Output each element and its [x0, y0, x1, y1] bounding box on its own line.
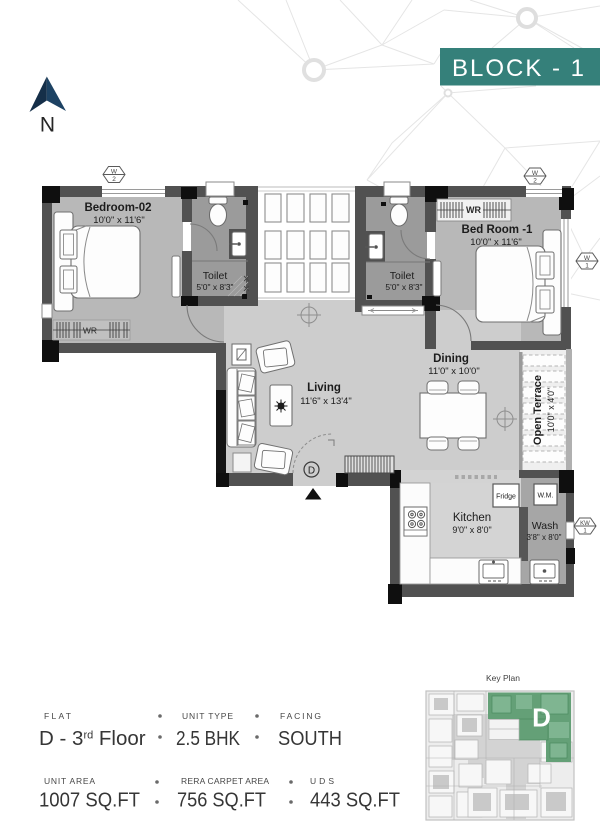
svg-text:1: 1 [585, 263, 589, 270]
svg-text:2: 2 [533, 178, 537, 185]
svg-text:W: W [584, 255, 591, 262]
svg-text:D - 3rd Floor: D - 3rd Floor [39, 727, 146, 750]
svg-text:Dining: Dining [433, 353, 469, 365]
svg-text:WR: WR [83, 326, 97, 336]
svg-text:W: W [111, 169, 118, 176]
svg-text:UDS: UDS [310, 776, 334, 786]
svg-text:W.M.: W.M. [538, 493, 554, 500]
svg-text:10'0" x 11'6": 10'0" x 11'6" [93, 215, 144, 226]
svg-text:SOUTH: SOUTH [278, 727, 342, 750]
svg-text:9'0" x 8'0": 9'0" x 8'0" [452, 525, 491, 535]
svg-text:Bed Room -1: Bed Room -1 [462, 224, 534, 236]
svg-text:3'8" x 8'0": 3'8" x 8'0" [527, 533, 562, 542]
svg-text:BLOCK - 1: BLOCK - 1 [452, 55, 586, 82]
svg-text:1007 SQ.FT: 1007 SQ.FT [39, 789, 140, 812]
svg-text:2: 2 [112, 176, 116, 183]
svg-text:11'0" x 10'0": 11'0" x 10'0" [428, 366, 479, 377]
svg-text:Toilet: Toilet [203, 270, 228, 282]
svg-text:Open Terrace: Open Terrace [532, 375, 544, 445]
svg-text:Fridge: Fridge [496, 494, 516, 501]
svg-text:Bedroom-02: Bedroom-02 [84, 202, 151, 214]
svg-text:Key Plan: Key Plan [486, 673, 520, 683]
svg-text:KW: KW [580, 521, 590, 527]
svg-text:UNIT AREA: UNIT AREA [44, 776, 95, 786]
svg-text:WR: WR [466, 205, 481, 215]
svg-text:UNIT TYPE: UNIT TYPE [182, 711, 233, 721]
svg-text:443 SQ.FT: 443 SQ.FT [310, 789, 400, 812]
svg-text:FLAT: FLAT [44, 711, 71, 721]
svg-text:D: D [532, 703, 551, 733]
svg-text:Kitchen: Kitchen [453, 512, 491, 524]
svg-text:10'0" x 4'0": 10'0" x 4'0" [546, 388, 556, 432]
svg-text:2.5 BHK: 2.5 BHK [176, 727, 240, 750]
svg-text:RERA CARPET AREA: RERA CARPET AREA [181, 776, 269, 786]
svg-text:W: W [532, 170, 539, 177]
svg-text:5'0" x 8'3": 5'0" x 8'3" [385, 282, 422, 292]
svg-text:11'6" x 13'4": 11'6" x 13'4" [300, 396, 351, 407]
svg-text:N: N [40, 114, 55, 137]
svg-text:Living: Living [307, 382, 341, 394]
svg-text:Toilet: Toilet [390, 270, 415, 282]
svg-text:Wash: Wash [532, 520, 559, 532]
svg-text:5'0" x 8'3": 5'0" x 8'3" [196, 282, 233, 292]
svg-text:756 SQ.FT: 756 SQ.FT [177, 789, 266, 812]
svg-text:10'0" x 11'6": 10'0" x 11'6" [470, 237, 521, 248]
svg-text:D: D [308, 466, 315, 477]
